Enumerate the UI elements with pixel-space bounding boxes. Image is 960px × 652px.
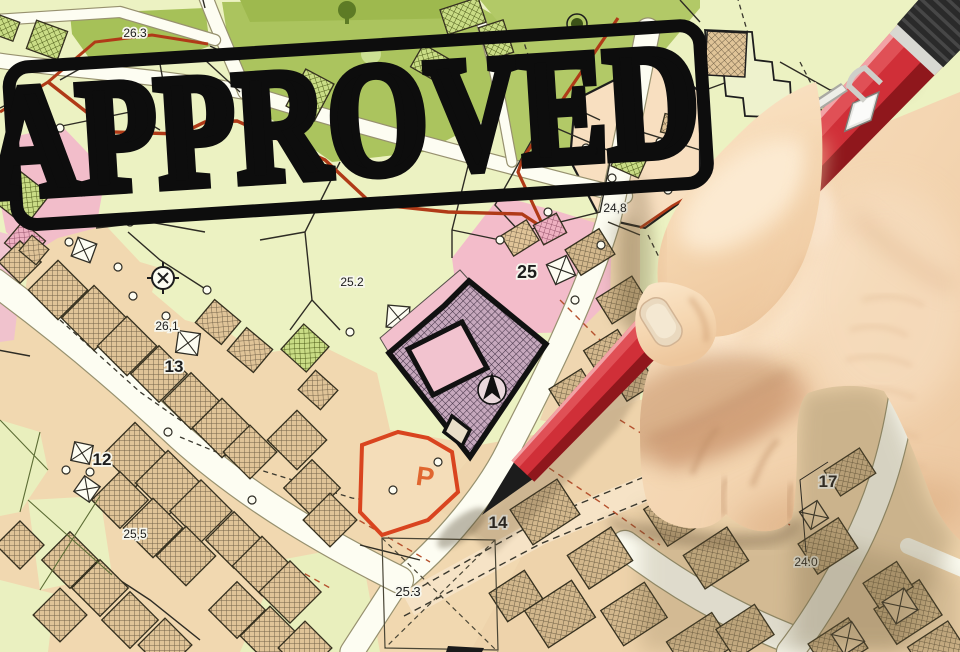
svg-text:26,1: 26,1	[155, 319, 179, 333]
svg-text:12: 12	[93, 450, 112, 469]
svg-text:26.3: 26.3	[123, 26, 147, 40]
svg-text:24,8: 24,8	[603, 201, 627, 215]
svg-text:25,5: 25,5	[123, 527, 147, 541]
svg-text:25: 25	[517, 262, 537, 282]
svg-text:25.3: 25.3	[395, 584, 420, 599]
svg-text:25.2: 25.2	[340, 275, 364, 289]
svg-text:13: 13	[165, 357, 184, 376]
